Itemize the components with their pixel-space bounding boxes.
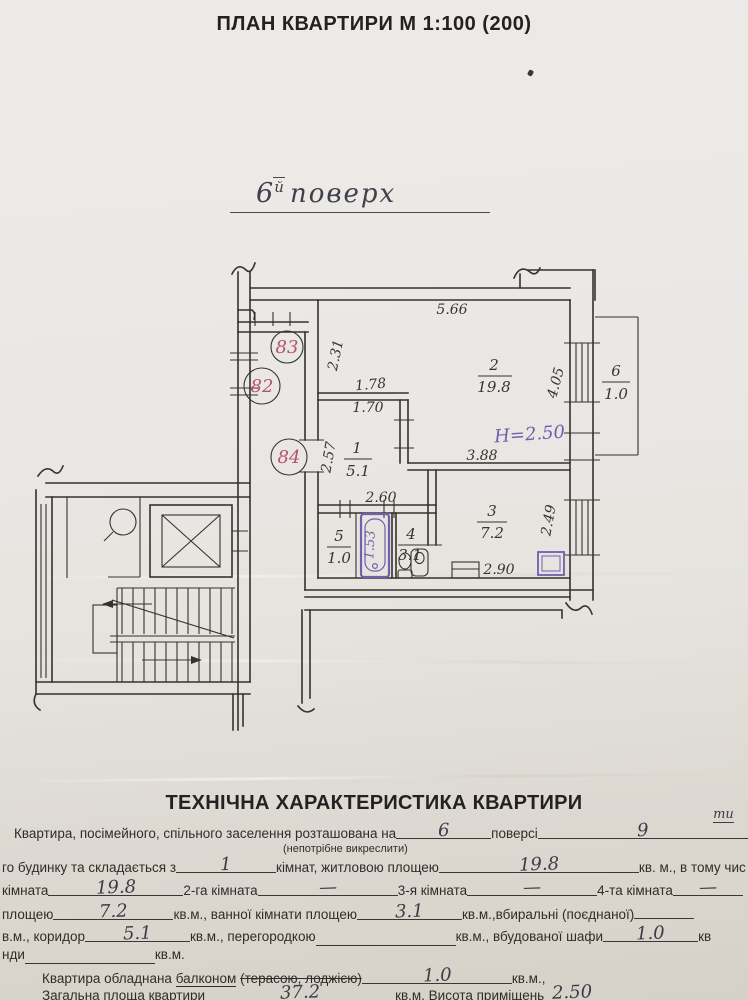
- tech-note-small: (непотрібне викреслити): [283, 843, 408, 855]
- room5-number: 5: [334, 527, 344, 545]
- top-right-pier: [520, 270, 595, 300]
- lower-left-wall-stub: [298, 610, 314, 712]
- blank-balcony-area: 1.0: [362, 967, 512, 984]
- ink-speck: [527, 69, 534, 77]
- room2-door-ticks: [394, 420, 414, 448]
- height-note: Н=2.50: [493, 422, 566, 448]
- floor-number: 6: [256, 178, 273, 209]
- room1-area: 5.1: [346, 462, 370, 480]
- corridor-left-wall: [238, 272, 250, 730]
- hall-vertical-partition: [400, 400, 408, 463]
- tech-line-2: го будинку та складається з1кімнат, житл…: [0, 856, 748, 875]
- garbage-chute-icon: [110, 509, 136, 535]
- wall-break-mark: [38, 466, 63, 476]
- blank-room4-area: —: [673, 879, 743, 896]
- stair-landing: [93, 605, 117, 653]
- blank-living-area: 19.8: [439, 856, 639, 873]
- apartment-left-wall: [305, 300, 318, 590]
- corridor-wall-hook: [238, 310, 255, 319]
- stair-block-bottom-wall: [36, 682, 250, 694]
- stair-mid-landing: [110, 636, 235, 642]
- tech-line-3: кімната19.82-га кімната—3-я кімната—4-та…: [0, 879, 748, 898]
- dim-right: 4.05: [544, 366, 568, 401]
- dim-kitchen-bottom: 2.90: [482, 562, 514, 578]
- blank-storey: 6: [396, 822, 491, 839]
- blank-wc: [634, 902, 694, 919]
- room2-number: 2: [488, 356, 499, 374]
- room2-area: 19.8: [477, 378, 510, 396]
- blank-total-storeys: 9ти: [538, 822, 748, 839]
- right-wall-break: [566, 603, 592, 614]
- tech-line-4: площею7.2кв.м., ванної кімнати площею3.1…: [0, 902, 748, 922]
- toilet-tank: [398, 570, 412, 578]
- stair-risers-upper: [122, 588, 232, 634]
- blank-veranda: [25, 947, 155, 964]
- blank-total-area: 37.2: [205, 984, 395, 1000]
- room4-area: 3.1: [398, 546, 422, 564]
- bathtub-drain: [373, 564, 378, 569]
- unit-82-number: 82: [251, 376, 274, 397]
- scanned-floorplan-page: ПЛАН КВАРТИРИ М 1:100 (200) 6й поверх: [0, 0, 748, 1000]
- storeys-suffix: ти: [713, 807, 734, 823]
- room2-kitchen-wall: [408, 463, 570, 470]
- dim-kitchen-right: 2.49: [538, 503, 559, 538]
- unit-84-number: 84: [278, 447, 301, 468]
- floor-suffix: й: [273, 177, 285, 196]
- tech-line-1-text: Квартира, посімейного, спільного заселен…: [14, 826, 396, 841]
- floor-plan-drawing: 83 82 84: [0, 248, 748, 778]
- kitchen-left-wall: [428, 470, 436, 545]
- blank-room2-area: —: [258, 879, 398, 896]
- room3-number: 3: [487, 502, 497, 520]
- stairwell-edge: [117, 588, 235, 682]
- dim-hall-left: 2.57: [318, 440, 339, 475]
- stair-arrow-down-head: [191, 656, 202, 664]
- kitchen-sink-icon: [452, 562, 479, 578]
- tech-line-8: Загальна площа квартири37.2кв.м. Висота …: [0, 984, 748, 1000]
- dim-hall-w1: 1.78: [354, 376, 387, 395]
- blank-kitchen-area: 7.2: [53, 903, 173, 920]
- room1-number: 1: [352, 439, 362, 457]
- room3-area: 7.2: [480, 524, 504, 542]
- blank-bathroom-area: 3.1: [357, 903, 462, 920]
- floor-note: 6й поверх: [230, 178, 490, 213]
- blank-room-count: 1: [176, 856, 276, 873]
- tub-length: 1.53: [362, 530, 378, 560]
- balcony-window-hatch: [576, 343, 588, 402]
- blank-partition: [316, 929, 456, 946]
- dim-room2-bottom: 3.88: [466, 448, 497, 464]
- blank-room1-area: 19.8: [48, 879, 183, 896]
- stove-inner: [542, 556, 560, 571]
- stair-arrow-up-head: [102, 600, 113, 608]
- chute-alcove-walls: [67, 497, 140, 578]
- corridor-wall-break-top: [232, 263, 255, 274]
- blank-corridor-area: 5.1: [85, 925, 190, 942]
- bath-block-top-wall: [318, 505, 436, 513]
- ceiling-height-value: 2.50: [551, 981, 592, 1000]
- apartment-bottom-wall: [305, 578, 593, 590]
- bath-toilet-partition: [392, 513, 396, 578]
- bottom-corner-hook: [34, 694, 40, 710]
- elevator-cross: [162, 515, 220, 567]
- unit-83-number: 83: [276, 337, 299, 358]
- stair-block-top-wall: [46, 483, 250, 497]
- tech-line-6: ндикв.м.: [0, 947, 748, 964]
- floor-word: поверх: [290, 179, 396, 209]
- lower-section-wall: [305, 597, 570, 618]
- hall-room2-partition: [318, 393, 408, 400]
- dim-top: 5.66: [436, 302, 467, 318]
- balcony-number: 6: [611, 362, 621, 380]
- left-window-hatch: [41, 504, 46, 678]
- dim-hall-w2: 1.70: [352, 400, 383, 416]
- dim-left: 2.31: [325, 338, 347, 373]
- balcony-area: 1.0: [604, 385, 628, 403]
- blank-closet-area: 1.0: [603, 925, 698, 942]
- tech-heading: ТЕХНІЧНА ХАРАКТЕРИСТИКА КВАРТИРИ: [0, 792, 748, 815]
- chute-handle: [104, 532, 113, 541]
- corridor-door-ticks: [255, 312, 290, 326]
- kitchen-window-hatch: [576, 500, 588, 555]
- dim-bath-top: 2.60: [364, 490, 396, 506]
- room5-area: 1.0: [327, 549, 351, 567]
- stair-block-left-wall: [36, 490, 52, 694]
- blank-room3-area: —: [467, 879, 597, 896]
- stair-risers-lower: [122, 642, 232, 682]
- stair-diagonal: [112, 600, 234, 638]
- apartment-top-wall: [250, 288, 570, 300]
- elevator-door-ticks: [232, 531, 248, 551]
- tech-line-5: в.м., коридор5.1кв.м., перегородкоюкв.м.…: [0, 925, 748, 946]
- tech-line-1: Квартира, посімейного, спільного заселен…: [0, 822, 748, 841]
- page-title: ПЛАН КВАРТИРИ М 1:100 (200): [0, 13, 748, 36]
- room4-number: 4: [405, 525, 416, 543]
